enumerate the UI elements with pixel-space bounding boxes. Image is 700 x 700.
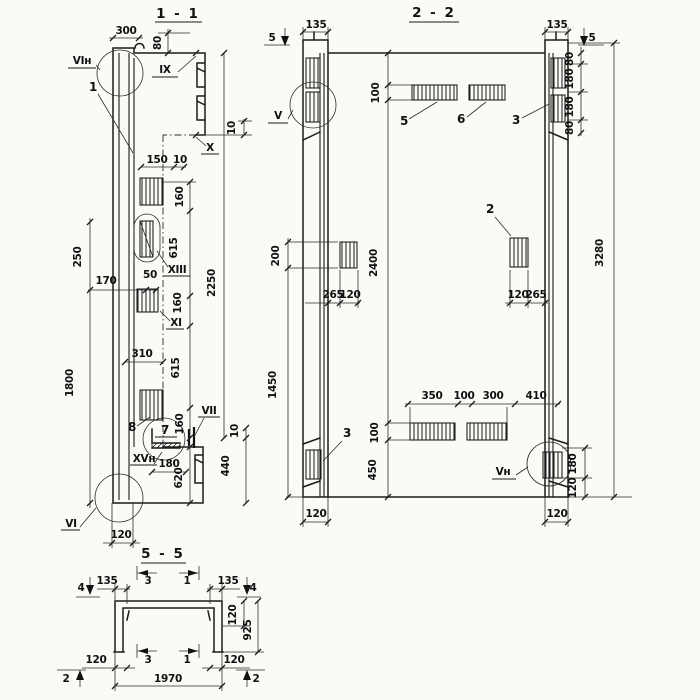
embed-plate-6: [469, 85, 505, 100]
section-marker-4-left: 4: [77, 582, 84, 594]
dim-135-left: 135: [96, 575, 117, 587]
embed-plate: [543, 452, 562, 478]
embed-plate: [306, 58, 320, 88]
section-marker-1-bottom: 1: [183, 654, 190, 666]
view-5-5: 5 - 5 4 135 3 1 135 4 120 925 120 3 1 12…: [57, 546, 265, 691]
section-marker-3-top: 3: [144, 575, 151, 587]
node-label-vi: VI: [65, 518, 76, 530]
dim-150: 150: [146, 154, 167, 166]
part-label-6: 6: [457, 112, 465, 126]
dim-100-top: 100: [370, 82, 382, 103]
dim-160-1: 160: [174, 186, 186, 207]
drawing-canvas: 1 - 1 300 80 VIн 1 IX X 10 150 10 160 61…: [0, 0, 700, 700]
embed-plate-2: [510, 238, 528, 267]
dim-615-2: 615: [170, 357, 182, 378]
dim-180-2: 180: [564, 96, 576, 117]
dim-160-3: 160: [174, 413, 186, 434]
embed-plate: [551, 58, 565, 88]
dim-120-left: 120: [339, 289, 360, 301]
section-marker-4-right: 4: [249, 582, 256, 594]
section-marker-5-right: 5: [588, 32, 595, 44]
embed-plate: [137, 289, 158, 312]
dim-120-top: 120: [227, 604, 239, 625]
weld-strip: [152, 443, 180, 448]
dim-135-right: 135: [546, 19, 567, 31]
embed-plate: [140, 390, 163, 420]
dim-160-2: 160: [172, 292, 184, 313]
dim-50: 50: [143, 269, 157, 281]
node-label-xv-n: XVн: [133, 453, 156, 465]
node-label-v-n: Vн: [496, 466, 511, 478]
channel-outline: [114, 601, 223, 652]
node-label-vii: VII: [201, 405, 216, 417]
dim-180-bot: 180: [567, 453, 579, 474]
dim-10-top: 10: [226, 121, 238, 135]
dim-350: 350: [421, 390, 442, 402]
view-1-1: 1 - 1 300 80 VIн 1 IX X 10 150 10 160 61…: [61, 6, 252, 548]
dim-135-right: 135: [217, 575, 238, 587]
embed-plate: [306, 92, 320, 122]
section-marker-5-left: 5: [268, 32, 275, 44]
blueprint-sheet: 1 - 1 300 80 VIн 1 IX X 10 150 10 160 61…: [0, 0, 700, 700]
dim-3280: 3280: [594, 239, 606, 267]
dim-180-1: 180: [564, 68, 576, 89]
embed-plate-mid-left: [340, 242, 357, 268]
dim-80-2: 80: [564, 121, 576, 135]
view-2-2: 2 - 2 5 5 135 135 80 180 180 80 V 100 5 …: [264, 5, 632, 527]
dim-450: 450: [367, 459, 379, 480]
embed-plate: [140, 178, 163, 205]
dim-2400: 2400: [368, 249, 380, 277]
section-title-2-2: 2 - 2: [412, 5, 456, 21]
embed-plate-bot-b: [467, 423, 507, 440]
dim-80: 80: [152, 36, 164, 50]
node-label-x: X: [206, 142, 214, 154]
part-label-1: 1: [89, 80, 97, 94]
dim-100-bot: 100: [369, 422, 381, 443]
dim-135-left: 135: [305, 19, 326, 31]
dim-120: 120: [110, 529, 131, 541]
dim-310: 310: [131, 348, 152, 360]
dim-620: 620: [173, 467, 185, 488]
part-label-8: 8: [128, 420, 136, 434]
rib-and-flange-outline: [113, 44, 205, 504]
dim-300: 300: [482, 390, 503, 402]
dim-1800: 1800: [64, 369, 76, 397]
dim-100-mid: 100: [453, 390, 474, 402]
section-title-1-1: 1 - 1: [156, 6, 200, 22]
dim-615-1: 615: [168, 237, 180, 258]
dim-2250: 2250: [206, 269, 218, 297]
section-marker-1-top: 1: [183, 575, 190, 587]
node-label-v: V: [274, 110, 283, 122]
dim-250: 250: [72, 246, 84, 267]
dim-300: 300: [115, 25, 136, 37]
embed-plate-5: [412, 85, 457, 100]
section-marker-2-left: 2: [62, 673, 69, 685]
dim-120-bottom-left: 120: [305, 508, 326, 520]
dim-10-step: 10: [173, 154, 187, 166]
part-label-7: 7: [161, 423, 169, 437]
detail-circle-vi-n: [97, 50, 143, 96]
embed-plate: [306, 450, 321, 479]
node-label-xiii: XIII: [168, 264, 187, 276]
dim-440: 440: [220, 455, 232, 476]
dim-120-bottom-right: 120: [223, 654, 244, 666]
dim-170: 170: [95, 275, 116, 287]
dim-120-bot: 120: [567, 477, 579, 498]
part-label-3-top: 3: [512, 113, 520, 127]
dim-80-1: 80: [564, 52, 576, 66]
node-label-vi-n: VIн: [73, 55, 91, 67]
section-marker-2-right: 2: [252, 673, 259, 685]
part-label-2: 2: [486, 202, 494, 216]
dim-120-bottom-left: 120: [85, 654, 106, 666]
embed-plate-bot-a: [410, 423, 455, 440]
dim-200: 200: [270, 245, 282, 266]
dim-925: 925: [242, 619, 254, 640]
section-arrowheads: [281, 36, 588, 46]
node-label-xi: XI: [170, 317, 181, 329]
part-label-5: 5: [400, 114, 408, 128]
dim-1450: 1450: [267, 371, 279, 399]
part-label-3-bottom: 3: [343, 426, 351, 440]
section-title-5-5: 5 - 5: [141, 546, 185, 562]
dim-265-right: 265: [525, 289, 546, 301]
dim-410: 410: [525, 390, 546, 402]
dim-10-bot: 10: [229, 424, 241, 438]
node-label-ix: IX: [159, 64, 171, 76]
dim-1970: 1970: [154, 673, 182, 685]
section-marker-3-bottom: 3: [144, 654, 151, 666]
embed-plate: [551, 95, 565, 122]
dim-120-bottom-right: 120: [546, 508, 567, 520]
